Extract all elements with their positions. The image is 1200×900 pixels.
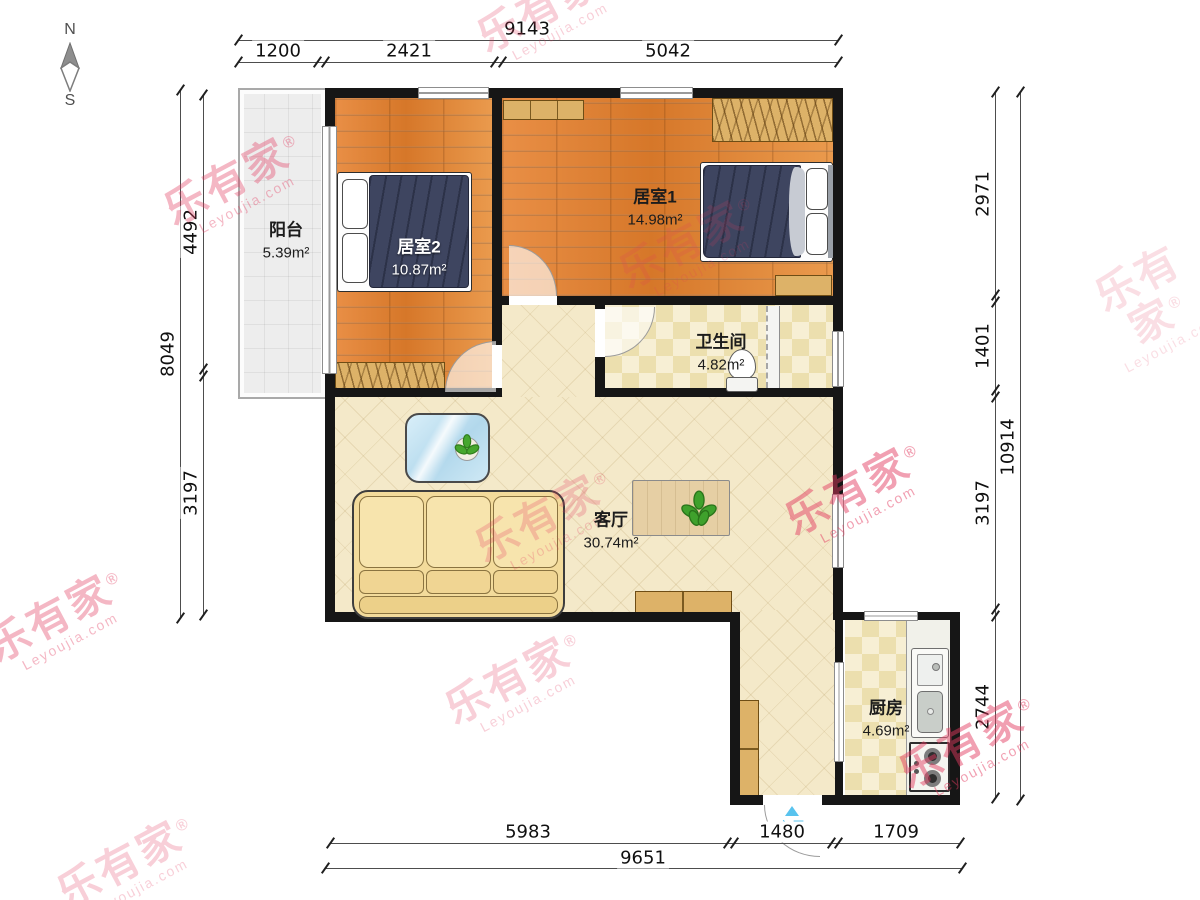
wall-segment	[325, 88, 843, 98]
dimension-label: 3197	[181, 467, 202, 519]
dimension-label: 1200	[252, 41, 304, 62]
dimension-label: 1709	[870, 822, 922, 843]
room-area: 14.98m²	[627, 209, 682, 230]
dimension-label: 5983	[502, 822, 554, 843]
room-label-bathroom: 卫生间 4.82m²	[696, 331, 747, 376]
dimension-label: 3197	[973, 477, 994, 529]
wall-segment	[835, 612, 843, 662]
sofa-cushion-icon	[359, 570, 424, 594]
side-table-icon	[632, 480, 730, 536]
room-name: 客厅	[583, 509, 638, 533]
shower-partition-icon	[766, 306, 780, 388]
kitchen-sink-icon	[911, 648, 949, 738]
watermark: 乐有家® Leyoujia.com	[1081, 235, 1200, 376]
room-label-bedroom1: 居室1 14.98m²	[627, 186, 682, 231]
hallway-cabinet-icon	[737, 700, 759, 797]
bedroom1-bed-icon	[700, 162, 833, 262]
room-area: 4.69m²	[863, 720, 910, 741]
room-name: 居室1	[627, 186, 682, 210]
kitchen-window-icon	[864, 611, 918, 621]
dimension-label: 2744	[973, 681, 994, 733]
compass-south-label: S	[65, 92, 76, 110]
burner-icon	[924, 770, 941, 787]
coffee-table-icon	[405, 413, 490, 483]
wall-segment	[822, 795, 960, 805]
room-name: 厨房	[863, 697, 910, 721]
sink-top-icon	[917, 654, 943, 686]
stove-knob-icon	[914, 769, 919, 774]
dimension-label: 1401	[973, 320, 994, 372]
watermark: 乐有家® Leyoujia.com	[50, 807, 210, 900]
room-area: 5.39m²	[263, 242, 310, 263]
dimension-label-right-overall: 10914	[998, 415, 1019, 478]
room-label-kitchen: 厨房 4.69m²	[863, 697, 910, 742]
stove-knob-icon	[914, 761, 919, 766]
dimension-label-left-overall: 8049	[158, 328, 179, 380]
wall-segment	[730, 612, 740, 805]
pillow-icon	[806, 168, 828, 210]
plant-icon	[680, 490, 718, 528]
compass-needle-icon	[56, 42, 84, 92]
dimension-label: 4492	[181, 206, 202, 258]
wall-segment	[595, 296, 605, 309]
watermark: 乐有家® Leyoujia.com	[438, 623, 598, 745]
sofa-icon	[352, 490, 565, 619]
bedroom1-wardrobe-icon	[712, 98, 833, 142]
sofa-front-icon	[359, 596, 558, 614]
room-area: 30.74m²	[583, 532, 638, 553]
dimension-label: 1480	[756, 822, 808, 843]
blanket-fold-icon	[789, 167, 805, 256]
room-name: 居室2	[391, 236, 446, 260]
wall-segment	[492, 88, 502, 345]
entrance-opening	[763, 795, 822, 805]
pillow-icon	[342, 233, 368, 283]
bedroom1-nightstand-icon	[775, 275, 832, 296]
room-name: 卫生间	[696, 331, 747, 355]
plant-icon	[453, 433, 481, 461]
corridor-floor	[502, 305, 595, 397]
watermark: 乐有家® Leyoujia.com	[0, 561, 140, 683]
sink-basin-icon	[917, 691, 943, 733]
dimension-line	[238, 40, 838, 41]
dimension-label: 5042	[642, 41, 694, 62]
sofa-cushion-icon	[426, 570, 491, 594]
kitchen-sliding-door-icon	[834, 662, 844, 762]
sofa-cushion-icon	[493, 570, 558, 594]
faucet-icon	[932, 663, 940, 671]
drain-icon	[927, 708, 934, 715]
dimension-line	[1020, 92, 1021, 800]
wall-segment	[950, 612, 960, 805]
sofa-cushion-icon	[359, 496, 424, 568]
wall-segment	[730, 795, 763, 805]
cabinet-shelf-line	[738, 748, 758, 750]
dimension-label: 2971	[973, 168, 994, 220]
room-name: 阳台	[263, 219, 310, 243]
bathroom-window-icon	[832, 331, 844, 387]
balcony-sliding-door-icon	[322, 126, 337, 374]
room-area: 4.82m²	[696, 354, 747, 375]
dimension-line	[330, 843, 960, 844]
sofa-seat	[359, 570, 558, 594]
living-room-window-icon	[832, 494, 844, 568]
dimension-line	[238, 62, 838, 63]
blanket-icon	[703, 165, 801, 258]
toilet-tank-icon	[726, 377, 758, 392]
bedroom1-window-icon	[620, 87, 693, 99]
room-label-balcony: 阳台 5.39m²	[263, 219, 310, 264]
dimension-line	[180, 90, 181, 618]
pillow-icon	[342, 179, 368, 229]
wall-segment	[595, 388, 843, 397]
sofa-backrest	[359, 496, 558, 568]
dimension-line	[995, 92, 996, 798]
room-label-living: 客厅 30.74m²	[583, 509, 638, 554]
burner-icon	[924, 748, 941, 765]
dimension-label: 2421	[383, 41, 435, 62]
pillow-icon	[806, 213, 828, 255]
sofa-cushion-icon	[426, 496, 491, 568]
dimension-line	[203, 95, 204, 615]
sofa-cushion-icon	[493, 496, 558, 568]
kitchen-stove-icon	[909, 742, 950, 792]
bedroom2-window-icon	[418, 87, 489, 99]
entrance-arrow-icon	[785, 806, 799, 816]
dimension-label-bottom-overall: 9651	[617, 848, 669, 869]
compass-north-label: N	[64, 21, 76, 39]
floor-plan: N S	[0, 0, 1200, 900]
room-label-bedroom2: 居室2 10.87m²	[391, 236, 446, 281]
dimension-label-top-overall: 9143	[501, 19, 553, 40]
room-area: 10.87m²	[391, 259, 446, 280]
bedroom1-shelf-icon	[503, 100, 584, 120]
